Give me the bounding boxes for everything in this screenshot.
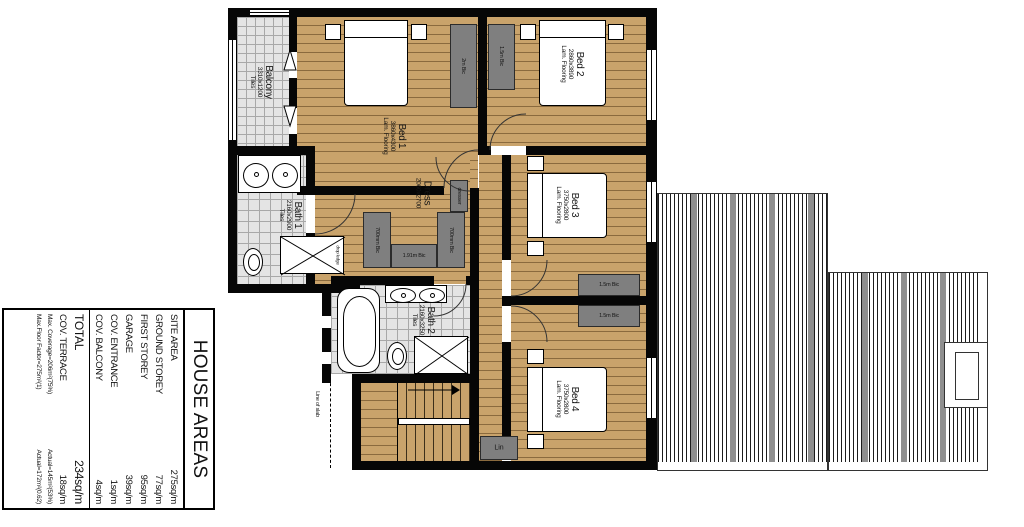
- bed4-robe-label: 1.5m Bic: [599, 313, 619, 319]
- row-value: 1sq/m: [106, 480, 121, 504]
- bed3-window: [646, 182, 657, 242]
- bath1-toilet: [243, 248, 263, 276]
- room-dims: 3750x2800: [562, 380, 569, 417]
- bedside-table: [608, 24, 624, 40]
- roof-section-upper: [657, 193, 828, 471]
- wall-segment: [466, 276, 478, 285]
- bedside-table: [325, 24, 341, 40]
- wall-segment: [470, 188, 479, 461]
- top-wall-window: [250, 9, 290, 16]
- roof-hatch: [658, 194, 827, 462]
- dresser-label: dresser: [456, 188, 462, 205]
- door-swing-arc: [434, 284, 466, 316]
- stair-handrail: [398, 418, 470, 425]
- room-dims: 2060x2700: [415, 178, 422, 208]
- bedside-table: [527, 434, 544, 449]
- table-row: GARAGE39sq/m: [121, 314, 136, 504]
- row-label: COV. BALCONY: [91, 314, 106, 381]
- room-floor: Lam. Flooring: [555, 186, 562, 223]
- footnote-right: Actual=145m²(53%): [44, 449, 55, 504]
- wall-segment: [352, 374, 361, 470]
- row-label: COV. TERRACE: [55, 314, 70, 381]
- row-label: GARAGE: [121, 314, 136, 353]
- bed3-label: Bed 3 3750x2800 Lam. Flooring: [555, 186, 579, 223]
- dress-closet-left-label: 700mm Bic: [374, 227, 380, 253]
- room-name: Bath 1: [292, 200, 302, 230]
- bath1-vanity: [238, 155, 301, 193]
- bath2-wall-window: [322, 352, 331, 364]
- bed2-label: Bed 2 2860x3890 Lam. Flooring: [560, 45, 584, 82]
- wall-segment: [228, 146, 315, 155]
- row-label: TOTAL: [70, 314, 88, 350]
- bed3-robe-label: 1.5m Bic: [599, 282, 619, 288]
- room-floor: Lam. Flooring: [555, 380, 562, 417]
- basin: [390, 288, 416, 303]
- bed-fold-line: [542, 368, 543, 431]
- dress-label: Dress 2060x2700: [415, 178, 432, 208]
- wall-segment: [502, 342, 511, 436]
- roof-chimney: [944, 342, 988, 408]
- wall-segment: [526, 146, 657, 155]
- basin: [272, 163, 298, 188]
- hall-strip-floor: [479, 155, 502, 461]
- row-label: FIRST STOREY: [136, 314, 151, 379]
- room-floor: Lam. Flooring: [560, 45, 567, 82]
- bed-fold-line: [542, 174, 543, 237]
- row-label: SITE AREA: [166, 314, 181, 360]
- basin: [243, 163, 269, 188]
- slider-arrow-up-icon: [284, 50, 296, 70]
- footnote-right: Actual=172m²(0.62): [33, 450, 44, 505]
- house-areas-body: SITE AREA275sq/m GROUND STOREY77sq/m FIR…: [4, 310, 183, 508]
- room-dims: 3750x2800: [562, 186, 569, 223]
- wall-segment: [331, 276, 434, 285]
- room-name: Bed 1: [396, 117, 406, 154]
- wall-segment: [502, 296, 511, 306]
- row-label: COV. ENTRANCE: [106, 314, 121, 387]
- room-dims: 2160x3250: [418, 305, 425, 335]
- toilet-bowl: [392, 348, 404, 365]
- basin-drain: [283, 172, 288, 177]
- house-areas-table-inner: HOUSE AREAS SITE AREA275sq/m GROUND STOR…: [2, 308, 215, 510]
- bath1-shower: [280, 236, 344, 274]
- linen-label: Lin: [494, 445, 503, 452]
- bed2-window: [646, 50, 657, 120]
- row-value: 234sq/m: [70, 460, 88, 504]
- wall-segment: [478, 8, 487, 155]
- line-of-slab-label: Line of slab: [314, 391, 320, 417]
- row-value: 4sq/m: [91, 480, 106, 504]
- bed4-label: Bed 4 3750x2800 Lam. Flooring: [555, 380, 579, 417]
- door-swing-arc: [511, 306, 547, 342]
- row-label: GROUND STOREY: [151, 314, 166, 394]
- bedside-table: [520, 24, 536, 40]
- basin-drain: [254, 172, 259, 177]
- bedside-table: [527, 241, 544, 256]
- bath2-wall-window: [322, 316, 331, 328]
- row-value: 18sq/m: [55, 475, 70, 504]
- bed-fold-line: [540, 37, 605, 38]
- room-name: Bed 3: [569, 186, 579, 223]
- room-name: Dress: [422, 178, 432, 208]
- bath2-tub: [337, 288, 380, 373]
- balcony-label: Balcony 3310x1200 Tiles: [249, 65, 273, 98]
- shower-note-label: drop ledge: [336, 245, 341, 264]
- slider-arrow-down-icon: [284, 106, 296, 126]
- bed-fold-line: [345, 37, 407, 38]
- house-areas-title: HOUSE AREAS: [183, 310, 213, 508]
- room-dims: 2860x3890: [567, 45, 574, 82]
- roof-chimney-inner: [955, 352, 979, 400]
- row-value: 275sq/m: [166, 470, 181, 504]
- row-value: 95sq/m: [136, 475, 151, 504]
- footnote-left: Max.Floor Factor=275m²(1): [33, 314, 44, 389]
- table-row: SITE AREA275sq/m: [166, 314, 181, 504]
- table-row: FIRST STOREY95sq/m: [136, 314, 151, 504]
- bed1-robe-label: 2m Bic: [460, 58, 466, 74]
- wall-segment: [511, 296, 657, 305]
- house-areas-table: HOUSE AREAS SITE AREA275sq/m GROUND STOR…: [2, 308, 215, 510]
- bedside-table: [411, 24, 427, 40]
- bed4-window: [646, 358, 657, 418]
- door-swing-arc: [490, 114, 526, 150]
- room-dims: 2160x2900: [285, 200, 292, 230]
- door-swing-arc: [511, 260, 547, 296]
- bath1-label: Bath 1 2160x2900 Tiles: [278, 200, 302, 230]
- bath2-shower: [414, 336, 468, 374]
- room-floor: Tiles: [411, 305, 418, 335]
- room-name: Bed 4: [569, 380, 579, 417]
- table-row: COV. TERRACE18sq/m: [55, 314, 70, 504]
- bed1-bed: [344, 20, 408, 106]
- table-row: COV. BALCONY4sq/m: [91, 314, 106, 504]
- wall-segment: [502, 155, 511, 260]
- footnote-left: Max. Coverage=206m²(75%): [44, 314, 55, 394]
- bath2-label: Bath 2 2160x3250 Tiles: [411, 305, 435, 335]
- room-floor: Tiles: [249, 65, 256, 98]
- dress-closet-bottom-label: 1.91m Bic: [403, 253, 426, 259]
- room-dims: 3310x1200: [256, 65, 263, 98]
- table-total-row: TOTAL234sq/m: [70, 314, 88, 504]
- door-swing-arc: [315, 194, 355, 234]
- table-divider: [89, 310, 90, 508]
- bed2-robe-label: 1.5m Bic: [498, 46, 504, 66]
- table-row: COV. ENTRANCE1sq/m: [106, 314, 121, 504]
- wall-segment: [228, 146, 237, 293]
- room-floor: Lam. Flooring: [382, 117, 389, 154]
- door-swing-arc: [436, 157, 470, 191]
- basin-drain: [401, 293, 406, 298]
- line-of-slab: [330, 378, 331, 468]
- room-floor: Tiles: [278, 200, 285, 230]
- balcony-window: [228, 40, 237, 140]
- floor-plan-page: HOUSE AREAS SITE AREA275sq/m GROUND STOR…: [0, 0, 1024, 527]
- table-row: GROUND STOREY77sq/m: [151, 314, 166, 504]
- row-value: 39sq/m: [121, 475, 136, 504]
- tub-basin: [343, 296, 376, 367]
- room-dims: 3860x4300: [389, 117, 396, 154]
- bath2-toilet: [387, 342, 407, 370]
- room-name: Balcony: [263, 65, 273, 98]
- bedside-table: [527, 156, 544, 171]
- toilet-bowl: [248, 254, 260, 271]
- table-footnote: Max.Floor Factor=275m²(1)Actual=172m²(0.…: [33, 314, 44, 504]
- wall-segment: [352, 461, 657, 470]
- row-value: 77sq/m: [151, 475, 166, 504]
- room-name: Bed 2: [574, 45, 584, 82]
- dress-closet-right-label: 700mm Bic: [448, 227, 454, 253]
- wall-segment: [322, 284, 331, 383]
- stairs-direction-arrow-icon: [408, 384, 460, 396]
- wall-segment: [352, 374, 470, 383]
- room-name: Bath 2: [425, 305, 435, 335]
- bed1-label: Bed 1 3860x4300 Lam. Flooring: [382, 117, 406, 154]
- table-footnote: Max. Coverage=206m²(75%)Actual=145m²(53%…: [44, 314, 55, 504]
- bedside-table: [527, 349, 544, 364]
- shower-cross-icon: [415, 337, 469, 375]
